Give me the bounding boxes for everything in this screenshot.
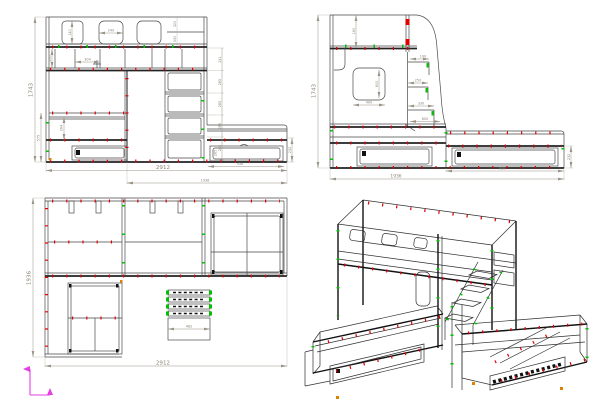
dimension-label: 264 — [60, 125, 64, 131]
drawer-handle — [457, 152, 461, 157]
dimension-label: 1936 — [201, 179, 210, 183]
dimension-label: 575 — [37, 135, 41, 141]
dimension-label: 320 — [173, 21, 177, 27]
section-marker — [406, 19, 410, 25]
dimension-label: 250 — [48, 55, 52, 61]
ucs-axes-icon — [30, 369, 50, 395]
dimension-label: 938 — [237, 162, 243, 166]
dimension-label: 1936 — [27, 270, 33, 285]
dimension-label: 285 — [214, 150, 218, 156]
step-connector — [427, 63, 429, 68]
orange-marker — [472, 382, 475, 385]
orange-marker — [560, 387, 563, 390]
step-connector — [426, 88, 428, 93]
dimension-label: 1743 — [312, 83, 318, 98]
dimension-label: 1743 — [29, 82, 35, 97]
dimension-label: 285 — [218, 79, 222, 85]
dimension-label: 304 — [84, 58, 90, 62]
dimension-label: 938 — [499, 167, 505, 171]
side-structure — [330, 15, 564, 168]
plan-view: 1936 2912 482 — [27, 198, 288, 395]
dimension-label: 2912 — [156, 360, 170, 366]
dimension-label: 2912 — [156, 165, 170, 171]
cad-drawing-canvas: 1743 575 264 140 240 250 304 320 330 241 — [0, 0, 600, 404]
front-elevation-view: 1743 575 264 140 240 250 304 320 330 241 — [29, 17, 295, 184]
isometric-view — [305, 200, 587, 399]
section-marker — [406, 39, 410, 45]
front-structure — [46, 17, 287, 162]
dimension-label: 250 — [415, 79, 421, 83]
orange-marker — [120, 280, 123, 283]
front-fastener-marks — [48, 47, 287, 162]
side-dimensions: 1743 160 600 400 190 250 330 600 938 232 — [312, 15, 574, 180]
dimension-label: 285 — [218, 123, 222, 129]
dimension-label: 600 — [375, 81, 379, 87]
plan-stairs — [166, 290, 212, 340]
multiview-drawing: 1743 575 264 140 240 250 304 320 330 241 — [0, 0, 600, 404]
dimension-label: 240 — [108, 29, 114, 33]
dimension-label: 600 — [422, 117, 428, 121]
dimension-label: 1936 — [390, 174, 401, 180]
iso-fastener-marks — [313, 203, 587, 399]
dimension-label: 400 — [366, 101, 372, 105]
side-elevation-view: 1743 160 600 400 190 250 330 600 938 232 — [312, 15, 574, 180]
dimension-label: 160 — [352, 28, 356, 34]
drawer-handle — [76, 150, 80, 155]
dimension-label: 232 — [288, 147, 292, 153]
dimension-label: 140 — [68, 29, 72, 35]
orange-marker — [336, 396, 339, 399]
dimension-label: 330 — [173, 36, 177, 42]
dimension-label: 285 — [218, 101, 222, 107]
plan-dimensions: 1936 2912 482 — [27, 198, 288, 367]
step-connector — [432, 111, 434, 116]
dimension-label: 232 — [567, 154, 571, 160]
dimension-label: 190 — [420, 55, 426, 59]
orange-marker — [49, 158, 52, 161]
dimension-label: 330 — [418, 102, 424, 106]
dimension-label: 241 — [218, 56, 222, 62]
iso-structure — [305, 200, 587, 390]
dimension-label: 482 — [186, 325, 192, 329]
dimension-label: 285 — [218, 145, 222, 151]
drawer-handle — [362, 151, 366, 156]
